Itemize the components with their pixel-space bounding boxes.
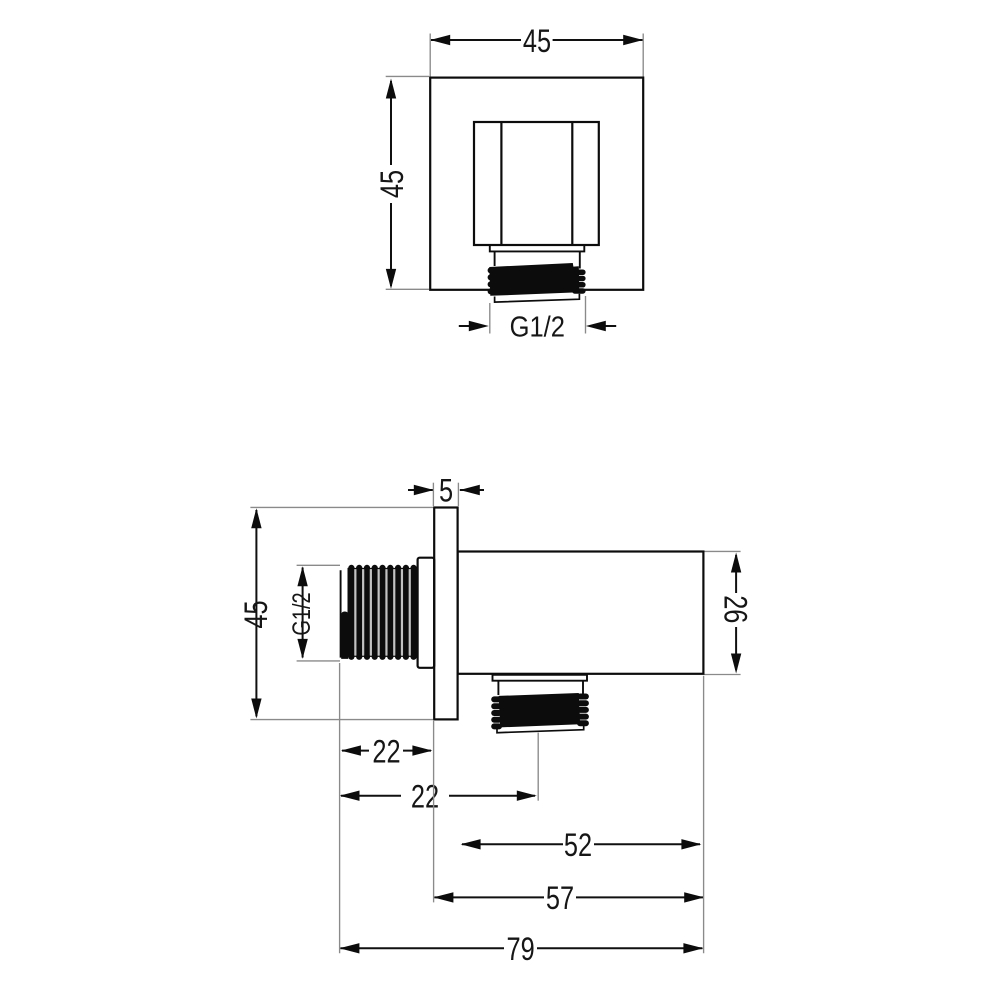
svg-text:G1/2: G1/2 (288, 592, 315, 635)
svg-text:52: 52 (564, 828, 592, 864)
svg-text:57: 57 (546, 881, 574, 917)
svg-text:45: 45 (375, 170, 411, 198)
svg-text:G1/2: G1/2 (510, 310, 565, 343)
svg-text:45: 45 (239, 600, 275, 628)
svg-text:5: 5 (439, 473, 453, 509)
svg-text:79: 79 (507, 932, 535, 968)
svg-text:26: 26 (716, 595, 752, 623)
svg-text:22: 22 (411, 780, 439, 816)
svg-text:45: 45 (523, 24, 551, 60)
svg-text:22: 22 (372, 735, 400, 771)
